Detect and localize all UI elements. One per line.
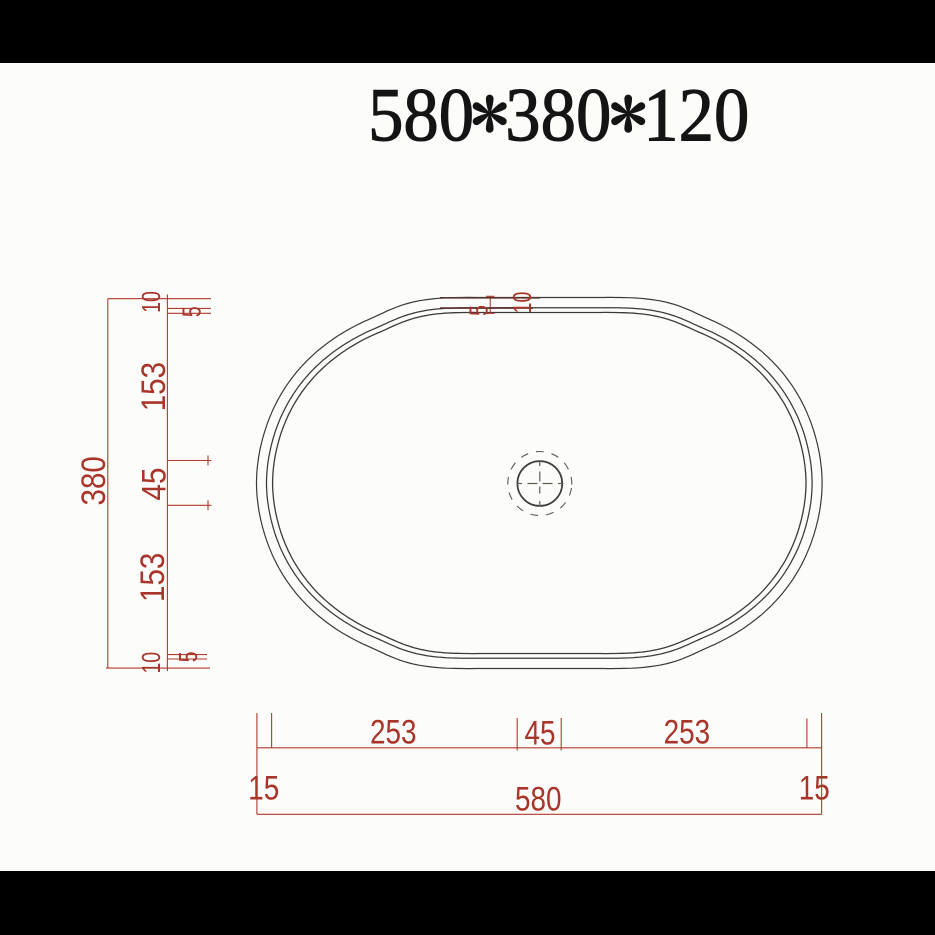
svg-text:15: 15 (799, 769, 830, 807)
svg-text:5: 5 (177, 306, 206, 317)
svg-text:10: 10 (507, 292, 536, 314)
svg-text:10: 10 (136, 652, 165, 674)
svg-text:253: 253 (370, 713, 417, 751)
svg-text:580: 580 (515, 780, 562, 818)
svg-text:120: 120 (643, 73, 749, 157)
svg-text:253: 253 (664, 713, 711, 751)
svg-text:45: 45 (524, 714, 555, 752)
svg-text:580: 580 (368, 73, 474, 157)
svg-text:153: 153 (133, 553, 171, 602)
svg-text:15: 15 (248, 769, 279, 807)
svg-text:10: 10 (136, 291, 165, 313)
svg-text:5: 5 (173, 651, 202, 662)
svg-text:153: 153 (134, 362, 172, 411)
svg-text:5: 5 (464, 305, 493, 316)
svg-text:380: 380 (74, 456, 112, 505)
svg-text:380: 380 (505, 73, 611, 157)
svg-text:45: 45 (134, 468, 172, 501)
